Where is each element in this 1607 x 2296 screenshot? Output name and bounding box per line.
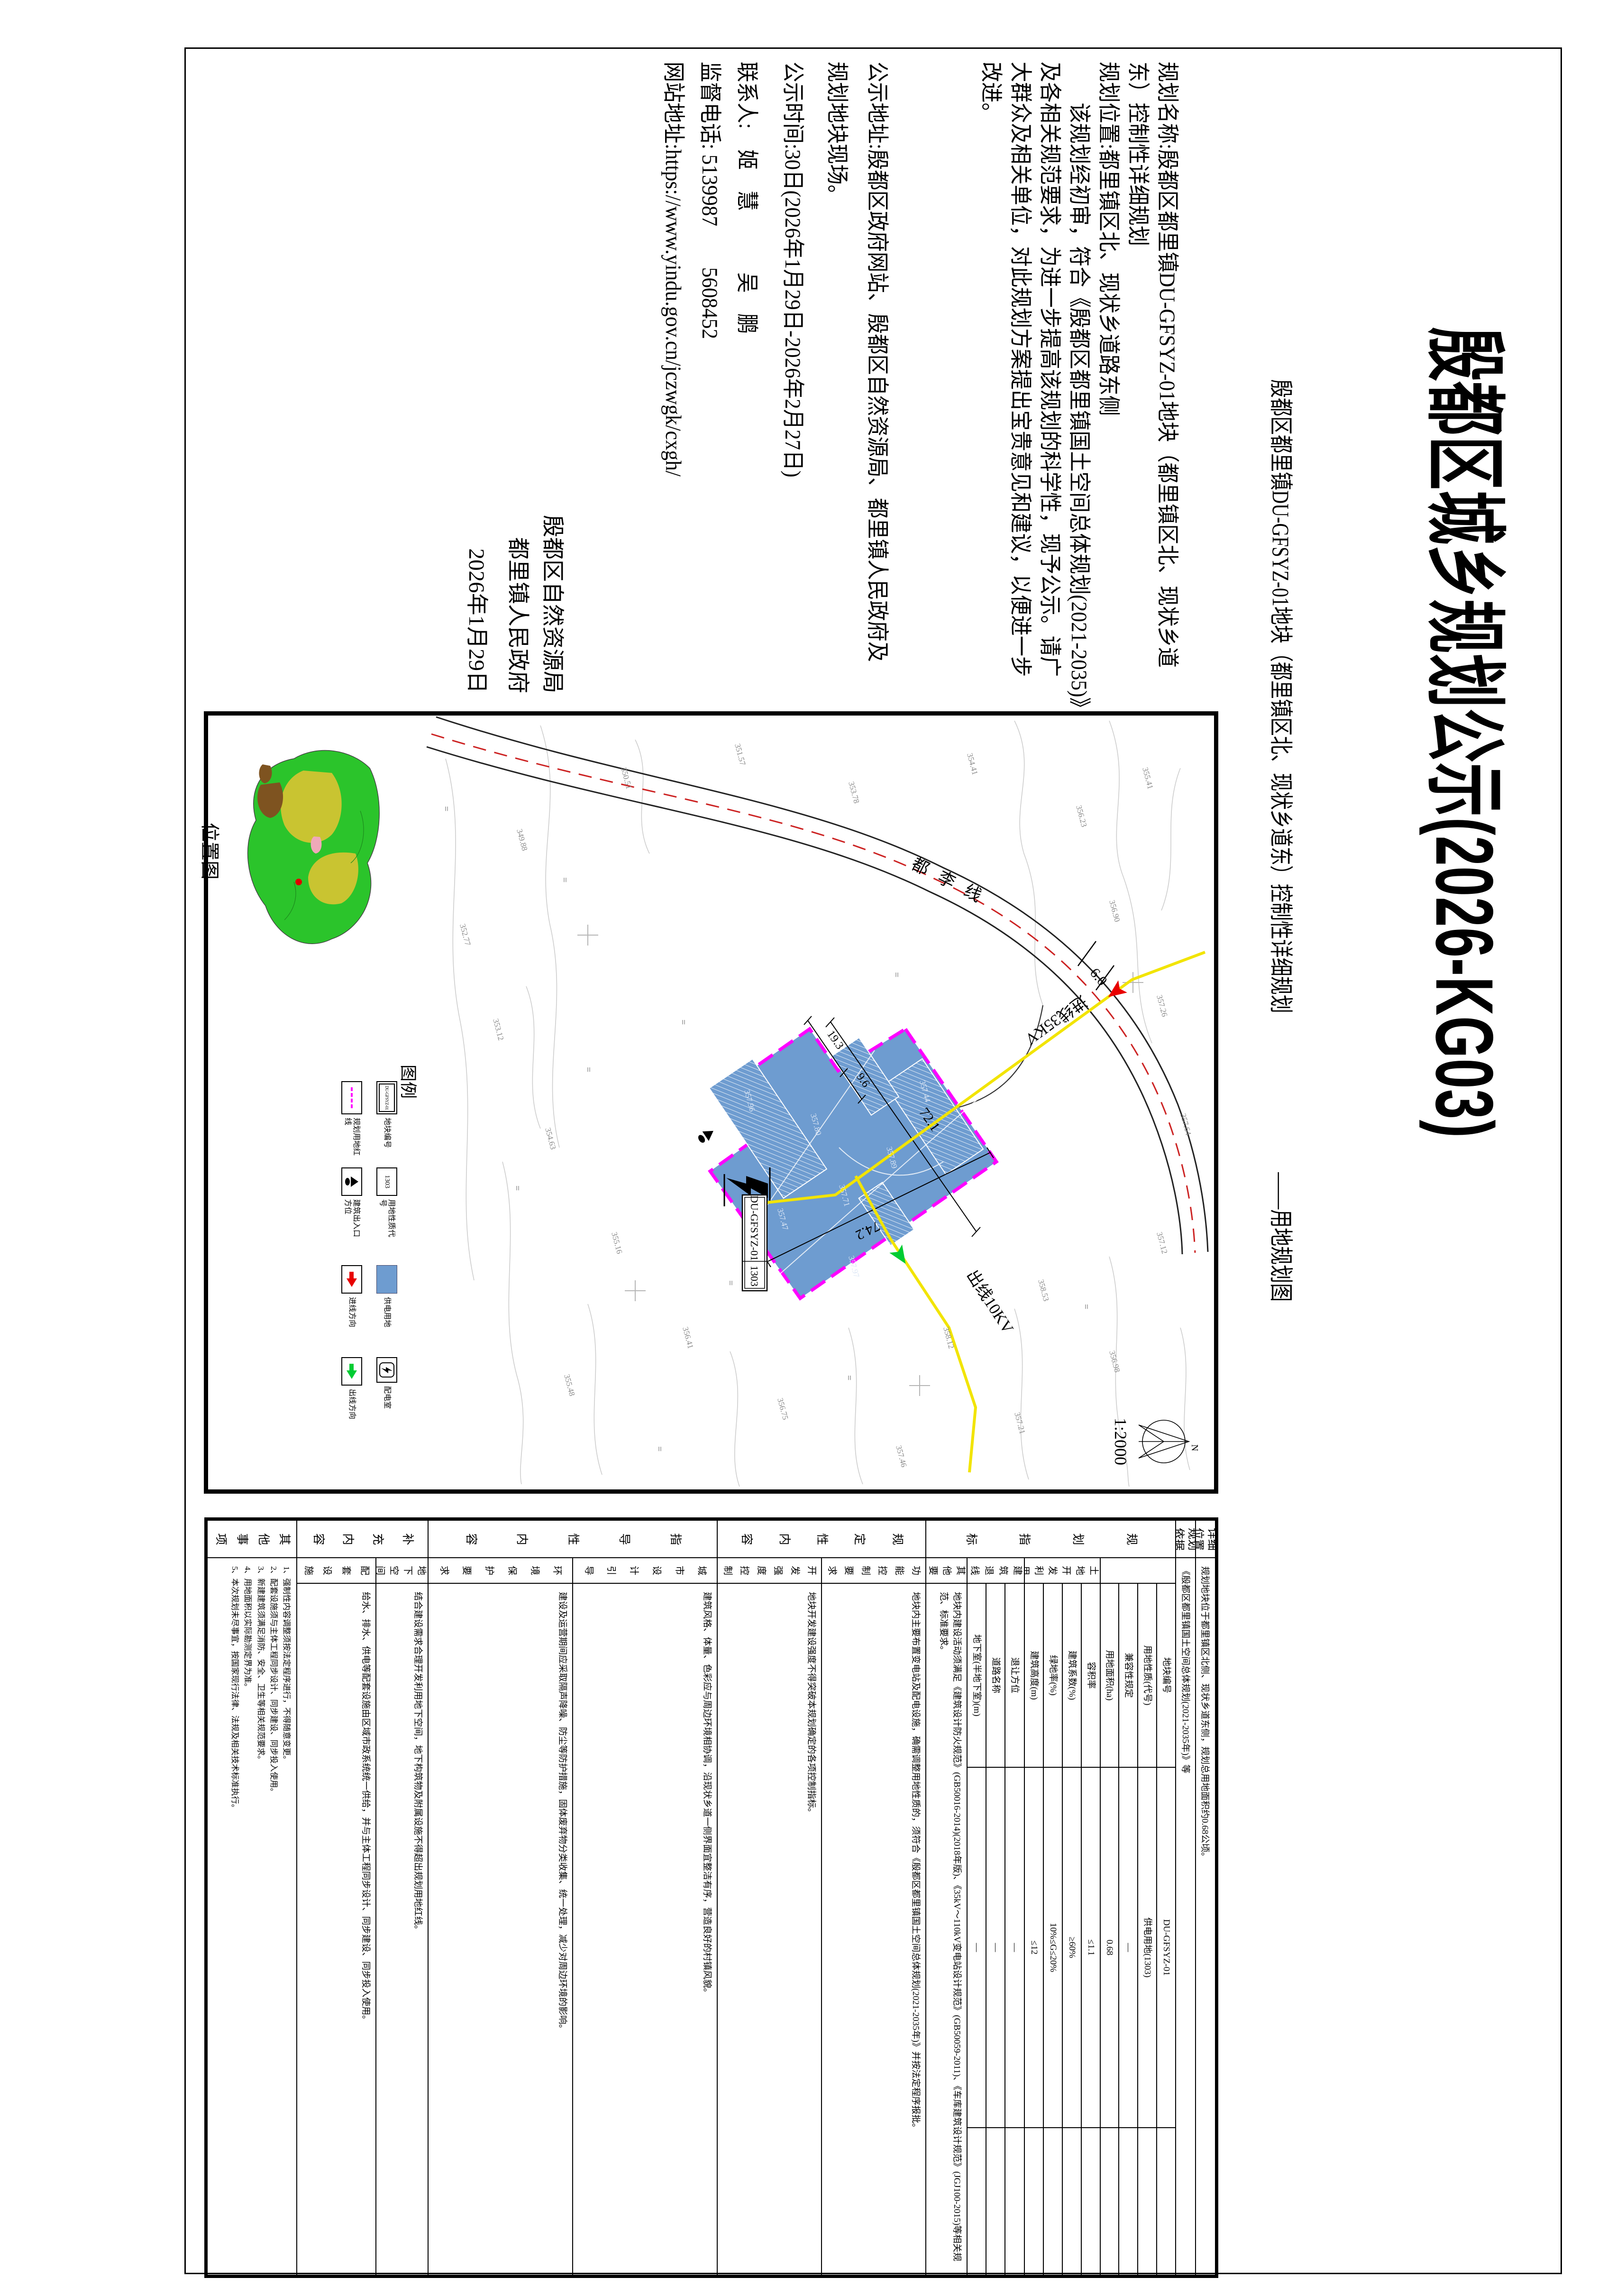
- table-grid-line: [1043, 1583, 1044, 2275]
- triangle-icon: [351, 1176, 358, 1187]
- ellipse-icon: [345, 1178, 350, 1185]
- inset-site-marker: [295, 879, 302, 885]
- table-grid-line: [572, 1558, 573, 2275]
- table-notes: 1、强制性内容调整须按法定程序进行，不得随意变更。2、配套设施须与主体工程同步设…: [208, 1558, 297, 2275]
- table-row-label: 城市设计引导: [573, 1558, 717, 1583]
- spot-elevation: 355.41: [1141, 766, 1155, 790]
- legend-item: 建筑出入口方位: [341, 1167, 362, 1239]
- table-row-value: 地块内建设活动须满足《建筑设计防火规范》(GB50016-2014)(2018年…: [926, 1583, 967, 2275]
- table-subsection-label: 建筑退线: [967, 1558, 1024, 1583]
- rotated-plan-document: 殷都区城乡规划公示(2026-KG03) 殷都区都里镇DU-GFSYZ-01地块…: [0, 0, 1607, 2296]
- table-row-value: 《殷都区都里镇国土空间总体规划(2021-2035年)》等: [1176, 1558, 1196, 2275]
- notice-line: 大群众及相关单位，对此规划方案提出宝贵意见和建议，以便进一步: [1006, 62, 1039, 690]
- table-section-label: 规定性内容: [717, 1521, 926, 1558]
- red-arrow-icon: [347, 1272, 357, 1287]
- spot-elevation: 355.16: [610, 1231, 624, 1255]
- spot-elevation: 357.21: [1013, 1411, 1027, 1435]
- table-row-label: 环境保护要求: [428, 1558, 573, 1583]
- svg-text:=: =: [441, 806, 451, 811]
- use-code-text: 1303: [383, 1175, 391, 1188]
- table-row-value: —: [1005, 1767, 1024, 2128]
- north-arrow-icon: [1139, 1420, 1189, 1463]
- table-row-value: 0.68: [1100, 1767, 1119, 2128]
- legend-item: 出线方向: [341, 1357, 362, 1429]
- plot-code-text: DU-GFSYZ-01: [384, 1085, 389, 1110]
- table-row-label: 兼容性规定: [1119, 1583, 1138, 1767]
- table-grid-line: [1137, 1583, 1138, 2275]
- legend-label: 出线方向: [347, 1389, 356, 1429]
- table-row-value: DU-GFSYZ-01: [1157, 1767, 1176, 2128]
- svg-text:=: =: [654, 1446, 665, 1451]
- spot-elevation: 358.53: [1036, 1278, 1050, 1302]
- table-grid-line: [1156, 1583, 1157, 2275]
- legend-label: 进线方向: [347, 1297, 356, 1337]
- table-row-value: 10%≤G≤20%: [1043, 1767, 1062, 2128]
- table-grid-line: [1195, 1521, 1196, 2275]
- use-code-box-icon: 1303: [376, 1167, 397, 1196]
- table-note-line: 2、配套设施须与主体工程同步设计、同步建设、同步投入使用。: [267, 1566, 280, 1796]
- svg-text:=: =: [1081, 1304, 1091, 1309]
- table-grid-line: [1118, 1583, 1119, 2275]
- spot-elevation: 356.75: [776, 1397, 790, 1421]
- table-row-label: 用地面积(ha): [1100, 1583, 1119, 1767]
- spot-elevation: 357.46: [894, 1444, 908, 1468]
- signature-line: 殷都区自然资源局: [539, 450, 571, 693]
- table-row-label: 用地性质(代号): [1138, 1583, 1157, 1767]
- outgoing-line-label: 出线10KV: [963, 1267, 1017, 1337]
- table-grid-line: [296, 1521, 297, 2275]
- svg-text:=: =: [678, 1019, 688, 1025]
- spot-elevation: 356.41: [681, 1326, 695, 1350]
- legend-label: 地块编号: [383, 1118, 391, 1157]
- table-subsection-label: 地下空间控制要求: [376, 1558, 428, 1583]
- legend-item: 供电用地: [376, 1265, 397, 1337]
- spot-elevation: 353.78: [847, 781, 861, 804]
- table-section-label: 规划指标: [926, 1521, 1176, 1558]
- legend-title: 图例: [397, 1065, 422, 1099]
- legend-label: 建筑出入口方位: [343, 1199, 361, 1239]
- table-row-label: 绿地率(%): [1043, 1583, 1062, 1767]
- scale-label: 1:2000: [1111, 1418, 1130, 1465]
- spot-elevation: 357.12: [1155, 1231, 1169, 1255]
- notice-line: 规划名称:殷都区都里镇DU-GFSYZ-01地块（都里镇区北、现状乡道: [1153, 62, 1186, 690]
- table-row-label: 规划依据: [1176, 1521, 1196, 1558]
- table-note-line: 3、新建建筑须满足消防、安全、卫生等相关规范要求。: [254, 1566, 267, 1764]
- spot-elevation: 356.90: [1107, 899, 1122, 923]
- inset-caption: 位置图: [198, 740, 225, 963]
- table-grid-line: [428, 1521, 429, 2275]
- table-row-label: 开发强度控制: [717, 1558, 822, 1583]
- spot-elevation: 352.77: [458, 923, 473, 947]
- spot-elevation: 356.23: [1074, 804, 1088, 828]
- legend-item: 配电室: [376, 1357, 397, 1426]
- red-line-legend-icon: [341, 1081, 362, 1114]
- north-label: N: [1189, 1444, 1200, 1451]
- incoming-line-label: 进线35KV: [1022, 992, 1090, 1049]
- planning-indicator-table: 规划指标规定性内容指导性内容补充内容其他事项土地开发利用强度建筑退线地下空间控制…: [204, 1517, 1218, 2278]
- spot-elevation: 357.64: [1178, 1112, 1193, 1137]
- table-row-value: 建筑风格、体量、色彩应与周边环境相协调，沿现状乡道一侧界面宜整洁有序，营造良好的…: [573, 1583, 717, 2275]
- table-grid-line: [967, 2127, 1176, 2128]
- table-grid-line: [925, 1521, 926, 2275]
- table-row-value: 供电用地(1303): [1138, 1767, 1157, 2128]
- legend-item: DU-GFSYZ-01地块编号: [376, 1081, 397, 1157]
- notice-line: 联系人: 姬 慧 吴 鹏: [733, 62, 766, 690]
- power-land-swatch-icon: [376, 1265, 397, 1294]
- table-grid-line: [821, 1558, 822, 2275]
- legend-label: 配电室: [383, 1386, 391, 1426]
- table-note-line: 4、用地面积以实际勘测定界为准。: [241, 1566, 254, 1691]
- table-row-value: —: [986, 1767, 1005, 2128]
- table-grid-line: [208, 1557, 1215, 1558]
- table-row-label: 建筑高度(m): [1024, 1583, 1043, 1767]
- incoming-arrow-icon: [1104, 980, 1127, 1003]
- spot-elevation: 358.12: [941, 1326, 956, 1350]
- notice-line: 公示地址:殷都区政府网站、殷都区自然资源局、都里镇人民政府及: [863, 62, 896, 690]
- entrance-mark-icon: [696, 1126, 716, 1145]
- notice-line: 该规划经初审，符合《殷都区都里镇国土空间总体规划(2021-2035)》: [1065, 62, 1098, 690]
- entrance-legend-icon: [341, 1167, 362, 1196]
- substation-legend-icon: [376, 1357, 397, 1383]
- red-arrow-legend-icon: [341, 1265, 362, 1294]
- magenta-dash-icon: [351, 1087, 353, 1108]
- table-row-value: ≤12: [1024, 1767, 1043, 2128]
- table-note-line: 1、强制性内容调整须按法定程序进行，不得随意变更。: [280, 1566, 293, 1764]
- table-grid-line: [967, 1767, 1176, 1768]
- green-arrow-legend-icon: [341, 1357, 362, 1386]
- svg-text:=: =: [559, 877, 570, 882]
- legend-label: 规划用地红线: [343, 1118, 361, 1157]
- notice-line: 监督电话: 5139987 5608452: [696, 62, 729, 690]
- page-subtitle: 殷都区都里镇DU-GFSYZ-01地块（都里镇区北、现状乡道东）控制性详细规划—…: [1266, 379, 1300, 1302]
- table-row-value: ≤1.1: [1081, 1767, 1100, 2128]
- notice-line: 网站地址:https://www.yindu.gov.cn/jczwgk/cxg…: [659, 62, 692, 690]
- parcel-code-text: DU-GFSYZ-01: [749, 1195, 760, 1261]
- spot-elevation: 357.26: [1155, 994, 1169, 1018]
- table-grid-line: [1100, 1558, 1101, 2275]
- table-row-value: 建设及运营期间应采取隔声降噪、防尘等防护措施，固体废弃物分类收集、统一处理，减少…: [428, 1583, 573, 2275]
- table-grid-line: [1062, 1583, 1063, 2275]
- table-grid-line: [1004, 1583, 1005, 2275]
- table-section-label: 其他事项: [208, 1521, 297, 1558]
- table-row-value: 地块开发建设强度不得突破本规划确定的各项控制指标。: [717, 1583, 822, 2275]
- table-section-label: 补充内容: [297, 1521, 428, 1558]
- table-row-label: 详细位置: [1196, 1521, 1215, 1558]
- spot-elevation: 356.98: [1107, 1350, 1122, 1373]
- subtitle-main: 殷都区都里镇DU-GFSYZ-01地块（都里镇区北、现状乡道东）控制性详细规划: [1268, 379, 1294, 1013]
- table-row-label: 道路名称: [986, 1583, 1005, 1767]
- table-row-value: 结合建设需求合理开发利用地下空间，地下构筑物及附属设施不得超出规划用地红线。: [376, 1583, 428, 2275]
- signature-line: 都里镇人民政府: [504, 450, 537, 693]
- table-grid-line: [1175, 1521, 1176, 2275]
- table-row-label: 地下室(半地下室)(m): [967, 1583, 986, 1767]
- notice-line: 改进。: [977, 62, 1010, 690]
- notice-line: 公示时间:30日(2026年1月29日-2026年2月27日): [779, 62, 812, 690]
- table-row-value: —: [1119, 1767, 1138, 2128]
- plot-code-box-icon: DU-GFSYZ-01: [376, 1081, 397, 1114]
- table-grid-line: [986, 1583, 986, 2275]
- table-row-value: 给水、排水、供电等配套设施由区域市政系统统一供给，并与主体工程同步设计、同步建设…: [297, 1583, 376, 2275]
- notice-line: 规划位置:都里镇区北、现状乡道路东侧: [1095, 62, 1127, 690]
- table-grid-line: [375, 1558, 376, 2275]
- spot-elevation: 349.88: [515, 828, 529, 852]
- svg-text:=: =: [891, 972, 902, 977]
- page-title: 殷都区城乡规划公示(2026-KG03): [1413, 327, 1531, 1139]
- location-inset-map: [228, 740, 389, 963]
- lightning-icon: [379, 1362, 395, 1378]
- table-row-value: 规划地块位于都里镇区北侧、现状乡道东侧，规划总用地面积约0.68公顷。: [1196, 1558, 1215, 2275]
- table-row-label: 配套设施: [297, 1558, 376, 1583]
- table-row-value: 地块内主要布置变电站及配电设施，确需调整用地性质的，须符合《殷都区都里镇国土空间…: [822, 1583, 926, 2275]
- table-grid-line: [1024, 1558, 1025, 2275]
- svg-text:=: =: [725, 1280, 736, 1286]
- parcel-label-box: DU-GFSYZ-01 1303: [742, 1195, 767, 1291]
- table-row-label: 其他要求: [926, 1558, 967, 1583]
- spot-elevation: 350.51: [619, 766, 633, 790]
- signature-line: 2026年1月29日: [463, 450, 495, 693]
- table-grid-line: [1081, 1583, 1082, 2275]
- table-grid-line: [967, 1558, 968, 2275]
- table-row-value: —: [967, 1767, 986, 2128]
- legend-item: 规划用地红线: [341, 1081, 362, 1157]
- notice-line: 东）控制性详细规划: [1124, 62, 1157, 690]
- screenshot-root: { "page": { "title": "殷都区城乡规划公示(2026-KG0…: [0, 0, 1607, 2296]
- table-row-value: ≥60%: [1062, 1767, 1081, 2128]
- legend-item: 进线方向: [341, 1265, 362, 1337]
- spot-elevation: 354.41: [965, 752, 979, 776]
- table-row-label: 地块编号: [1157, 1583, 1176, 1767]
- spot-elevation: 353.12: [491, 1018, 505, 1041]
- legend-label: 用地性质代号: [378, 1199, 396, 1239]
- table-grid-line: [717, 1521, 718, 2275]
- table-subsection-label: 土地开发利用强度: [1024, 1558, 1100, 1583]
- notice-line: 及各相关规范要求，为进一步提高该规划的科学性，现予公示。请广: [1036, 62, 1068, 690]
- green-arrow-icon: [347, 1364, 357, 1379]
- spot-elevation: 355.48: [562, 1373, 576, 1397]
- legend-item: 1303用地性质代号: [376, 1167, 397, 1239]
- inset-patch: [281, 771, 342, 843]
- svg-text:=: =: [583, 1067, 593, 1072]
- svg-text:=: =: [512, 1185, 522, 1191]
- table-row-label: 建筑系数(%): [1062, 1583, 1081, 1767]
- table-row-label: 容积率: [1081, 1583, 1100, 1767]
- svg-text:=: =: [844, 1375, 854, 1380]
- table-note-line: 5、本次规划未尽事宜，按国家现行法律、法规及相关技术标准执行。: [228, 1566, 241, 1812]
- table-row-label: 功能控制要求: [822, 1558, 926, 1583]
- notice-line: 规划地块现场。: [823, 62, 856, 690]
- subtitle-suffix: ——用地规划图: [1268, 1172, 1294, 1302]
- legend-label: 供电用地: [383, 1297, 391, 1337]
- parcel-use-code-text: 1303: [749, 1266, 760, 1286]
- table-grid-line: [297, 1583, 1176, 1584]
- table-section-label: 指导性内容: [428, 1521, 717, 1558]
- spot-elevation: 351.57: [733, 743, 748, 767]
- table-row-label: 退让方位: [1005, 1583, 1024, 1767]
